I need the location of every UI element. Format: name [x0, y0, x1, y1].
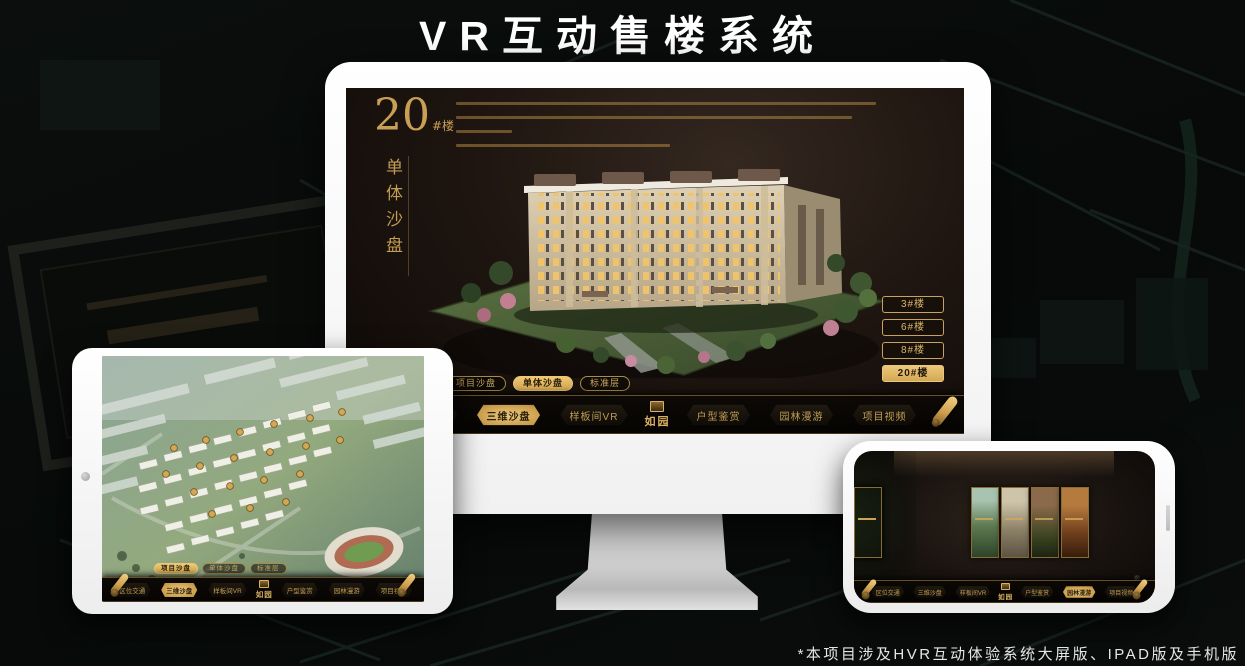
tablet-camera-icon — [81, 472, 90, 481]
building-number-text: 20 — [374, 90, 430, 141]
phone-brand-logo: 如园 — [998, 583, 1013, 601]
nav-item-3d-sandbox[interactable]: 三维沙盘 — [474, 404, 544, 427]
nav-item-garden-roam[interactable]: 园林漫游 — [766, 404, 836, 427]
nav-item-project-video[interactable]: 项目视频 — [849, 404, 919, 427]
tab-project-sandbox[interactable]: 项目沙盘 — [446, 376, 506, 391]
gallery-card[interactable] — [854, 487, 882, 558]
floor-button-3[interactable]: 3#楼 — [882, 296, 944, 313]
phone-screen: 区位交通 三维沙盘 样板间VR 如园 户型鉴赏 园林漫游 项目视频 — [854, 451, 1155, 603]
logo-text: 如园 — [998, 591, 1013, 601]
tab-standard-floor[interactable]: 标准层 — [580, 376, 630, 391]
footnote-text: *本项目涉及HVR互动体验系统大屏版、IPAD版及手机版 — [798, 643, 1239, 664]
tablet-tab-standard-floor[interactable]: 标准层 — [250, 563, 287, 574]
floor-button-6[interactable]: 6#楼 — [882, 319, 944, 336]
tablet-nav-item-3d-sandbox[interactable]: 三维沙盘 — [159, 582, 199, 598]
logo-emblem-icon — [1001, 583, 1010, 590]
tablet-nav-item-showroom-vr[interactable]: 样板间VR — [206, 582, 249, 598]
brand-logo: 如园 — [644, 401, 670, 429]
gallery-card[interactable] — [1031, 487, 1059, 558]
floor-button-20[interactable]: 20#楼 — [882, 365, 944, 382]
logo-emblem-icon — [259, 580, 269, 588]
tablet-navbar: 区位交通 三维沙盘 样板间VR 如园 户型鉴赏 园林漫游 项目视频 — [102, 577, 424, 602]
description-line — [456, 102, 876, 105]
floor-button-group: 3#楼 6#楼 8#楼 20#楼 — [882, 296, 946, 388]
nav-item-showroom-vr[interactable]: 样板间VR — [557, 404, 632, 427]
tablet-device: 项目沙盘 单体沙盘 标准层 区位交通 三维沙盘 样板间VR 如园 户型鉴赏 园林… — [72, 348, 453, 614]
phone-navbar: 区位交通 三维沙盘 样板间VR 如园 户型鉴赏 园林漫游 项目视频 — [854, 580, 1155, 603]
phone-nav-item-3d-sandbox[interactable]: 三维沙盘 — [912, 586, 948, 599]
hero-divider — [408, 156, 409, 276]
tablet-nav-item-garden-roam[interactable]: 园林漫游 — [327, 582, 367, 598]
gallery-card[interactable] — [1061, 487, 1089, 558]
phone-nav-item-floorplan[interactable]: 户型鉴赏 — [1019, 586, 1055, 599]
gallery-card[interactable] — [971, 487, 999, 558]
building-number: 20#楼 — [374, 92, 454, 150]
floor-button-8[interactable]: 8#楼 — [882, 342, 944, 359]
building-number-suffix: #楼 — [432, 119, 454, 133]
tablet-brand-logo: 如园 — [256, 580, 273, 600]
description-line — [456, 116, 852, 119]
nav-item-floorplan[interactable]: 户型鉴赏 — [683, 404, 753, 427]
phone-nav-item-garden-roam[interactable]: 园林漫游 — [1061, 586, 1097, 599]
tablet-view-tab-group: 项目沙盘 单体沙盘 标准层 — [154, 563, 287, 574]
building-subtitle: 单体沙盘 — [380, 158, 405, 262]
tablet-tab-project-sandbox[interactable]: 项目沙盘 — [154, 563, 198, 574]
view-tab-group: 项目沙盘 单体沙盘 标准层 — [446, 376, 630, 391]
page-title: VR互动售楼系统 — [0, 2, 1245, 62]
tablet-tab-single-sandbox[interactable]: 单体沙盘 — [202, 563, 246, 574]
phone-device: 区位交通 三维沙盘 样板间VR 如园 户型鉴赏 园林漫游 项目视频 — [843, 441, 1175, 613]
logo-text: 如园 — [644, 413, 670, 429]
poster: VR互动售楼系统 20#楼 单体沙盘 — [0, 0, 1245, 666]
tablet-screen: 项目沙盘 单体沙盘 标准层 区位交通 三维沙盘 样板间VR 如园 户型鉴赏 园林… — [102, 356, 424, 602]
logo-emblem-icon — [650, 401, 664, 412]
phone-speaker-icon — [1166, 505, 1170, 531]
tab-single-sandbox[interactable]: 单体沙盘 — [513, 376, 573, 391]
description-line — [456, 130, 512, 133]
phone-nav-item-showroom-vr[interactable]: 样板间VR — [954, 586, 992, 599]
logo-text: 如园 — [256, 589, 273, 600]
interior-ceiling — [894, 451, 1114, 477]
gallery-card[interactable] — [1001, 487, 1029, 558]
phone-nav-item-location[interactable]: 区位交通 — [870, 586, 906, 599]
tablet-nav-item-floorplan[interactable]: 户型鉴赏 — [280, 582, 320, 598]
building-3d-render — [416, 143, 896, 378]
